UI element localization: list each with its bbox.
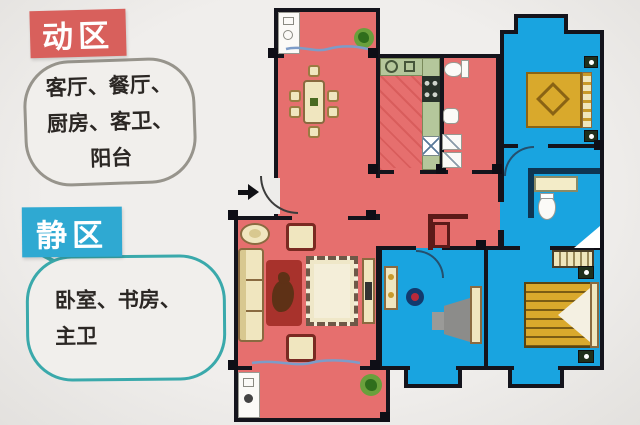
active-rooms-line: 厨房、客卫、	[26, 101, 193, 143]
sink-icon	[443, 108, 459, 124]
quiet-zone-bubble: 卧室、书房、 主卫	[25, 254, 226, 382]
wall-pillar	[268, 48, 278, 58]
table-centerpiece-icon	[310, 98, 318, 106]
bath-vanity	[534, 176, 578, 192]
armchair	[286, 223, 316, 251]
opening-dining-living	[292, 210, 348, 222]
toilet-icon	[444, 62, 462, 77]
entry-arrow-stem	[238, 190, 248, 195]
dining-chair	[289, 90, 301, 102]
opening-dining-corridor	[372, 178, 384, 214]
wall-pillar	[228, 360, 238, 370]
tv-icon	[365, 282, 372, 300]
active-rooms-line: 阳台	[28, 137, 195, 179]
stove-icon	[422, 76, 440, 102]
utility-fixture-icon	[243, 378, 254, 387]
active-zone-label: 动区	[29, 9, 126, 58]
dining-chair	[289, 106, 301, 118]
kitchen-sink-round-icon	[385, 60, 398, 73]
utility-fixture-icon	[283, 17, 294, 25]
wall-pillar	[492, 164, 502, 174]
door-guest-bath	[448, 168, 472, 178]
study-cabinet	[384, 266, 398, 310]
wall-pillar	[370, 360, 380, 370]
quiet-rooms-line: 主卫	[55, 317, 223, 355]
wall-pillar	[594, 140, 604, 150]
door-hall-threshold-inner	[500, 202, 506, 230]
corridor-shaft	[432, 222, 450, 248]
utility-basin-icon	[283, 30, 293, 40]
kitchen-prep-icon	[404, 61, 415, 72]
side-table-top	[249, 229, 261, 238]
toilet-tank-icon	[461, 60, 469, 78]
opening-study-bay	[410, 362, 456, 372]
door-arc-entrance	[260, 176, 298, 214]
wall-master-bath-h2	[578, 168, 600, 174]
wall-pillar	[228, 210, 238, 220]
utility-drain-icon	[244, 394, 253, 403]
desk-stool	[432, 312, 444, 330]
kitchen-sink-icon	[422, 136, 440, 156]
opening-corridor-living	[372, 220, 384, 246]
dining-chair	[327, 90, 339, 102]
bed-headboard	[590, 282, 599, 348]
active-zone-bubble: 客厅、餐厅、 厨房、客卫、 阳台	[22, 56, 198, 188]
wall-pillar	[476, 240, 486, 250]
wall-pillar	[380, 412, 390, 422]
desk-panel	[470, 286, 482, 344]
door-kitchen	[394, 168, 420, 178]
wall-master-bath-h1	[528, 168, 580, 174]
nightstand	[578, 350, 594, 363]
toilet-icon	[538, 196, 556, 220]
opening-master-bay	[514, 362, 558, 372]
sliding-door-wave	[250, 358, 362, 368]
door-master-bedroom	[520, 242, 550, 252]
entry-arrow-icon	[248, 184, 259, 200]
dining-chair	[308, 126, 320, 138]
wall-pillar	[368, 164, 378, 174]
washer-icon	[442, 134, 462, 150]
wall-pillar	[366, 210, 376, 220]
desk-chair-cushion	[411, 293, 419, 301]
bed-headboard	[582, 72, 592, 128]
dong-jing-zone-infographic: 动区 客厅、餐厅、 厨房、客卫、 阳台 静区 卧室、书房、 主卫	[0, 0, 640, 425]
quiet-zone-label: 静区	[22, 207, 122, 258]
wall-pillar	[368, 48, 378, 58]
plant-icon	[360, 374, 382, 396]
nightstand	[578, 266, 594, 279]
active-zone-title: 动区	[41, 10, 114, 57]
opening-bedroom1-bay	[518, 26, 564, 36]
cabinet-knob-icon	[388, 292, 394, 298]
patterned-rug	[306, 256, 358, 326]
quiet-rooms-line: 卧室、书房、	[55, 281, 223, 319]
wall-corridor-h	[428, 214, 468, 219]
sofa	[238, 248, 264, 342]
toilet-tank-icon	[540, 193, 554, 199]
dining-chair	[327, 106, 339, 118]
active-rooms-line: 客厅、餐厅、	[25, 65, 192, 107]
cabinet-knob-icon	[388, 274, 394, 280]
dining-chair	[308, 65, 320, 77]
washer-icon	[442, 152, 462, 168]
quiet-zone-title: 静区	[36, 209, 108, 255]
sliding-door-wave	[284, 44, 370, 54]
nightstand	[584, 56, 598, 68]
sculpture-icon	[278, 272, 290, 284]
